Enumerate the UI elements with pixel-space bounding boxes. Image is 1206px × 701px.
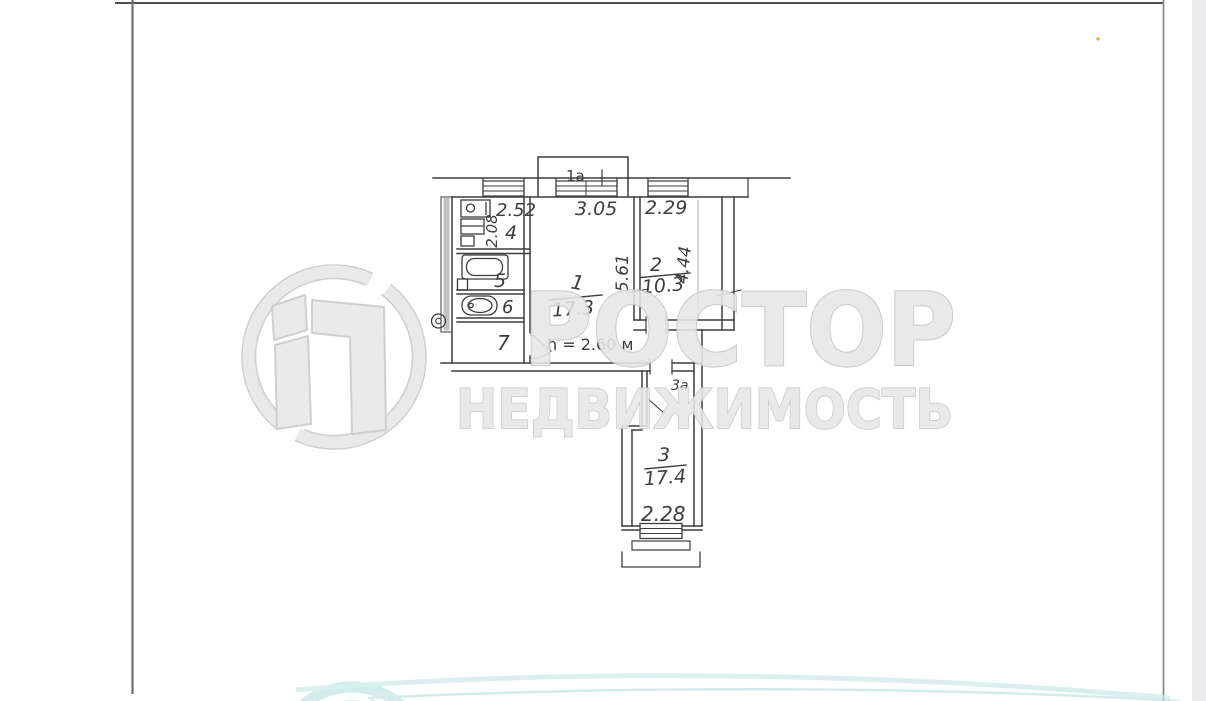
balcony-label: 1а — [566, 167, 585, 185]
scanned-floor-plan-page: 1а 2.52 3.05 2.29 2.08 4 5 6 7 1 17.3 h … — [0, 0, 1206, 701]
page-frame — [115, 0, 1206, 701]
kitchen-number: 4 — [505, 222, 517, 244]
kitchen-window — [483, 181, 524, 196]
ceiling-height-note: h = 2.60 м — [547, 335, 634, 354]
bathroom-number: 5 — [494, 270, 506, 292]
dim-room2-length: 4.44 — [672, 245, 696, 285]
dim-kitchen-width: 2.52 — [496, 200, 536, 221]
entrance-door-mark — [432, 314, 446, 328]
room1-number: 1 — [569, 270, 586, 296]
room2-window — [648, 181, 688, 196]
room1-area: 17.3 — [551, 297, 595, 322]
hallway-number: 7 — [497, 331, 510, 355]
dim-room3-width: 2.28 — [641, 502, 686, 526]
room3-area: 17.4 — [643, 465, 687, 490]
dim-room2-width: 2.29 — [645, 197, 687, 219]
dim-kitchen-depth: 2.08 — [483, 214, 501, 247]
room2-number: 2 — [650, 254, 662, 276]
floor-plan: 1а 2.52 3.05 2.29 2.08 4 5 6 7 1 17.3 h … — [0, 0, 1206, 701]
page-edge-band — [1192, 0, 1206, 701]
scan-speck — [1096, 37, 1099, 40]
dim-room1-length: 5.61 — [613, 254, 633, 292]
plan-labels: 1а 2.52 3.05 2.29 2.08 4 5 6 7 1 17.3 h … — [483, 167, 696, 526]
toilet-number: 6 — [502, 297, 513, 318]
room3-door-leaf — [647, 398, 664, 413]
dim-room1-width: 3.05 — [575, 198, 617, 220]
room3-sill — [632, 541, 690, 550]
washbasin-icon — [462, 296, 497, 315]
corridor-number: 3а — [671, 378, 689, 394]
room3-number: 3 — [658, 444, 670, 466]
